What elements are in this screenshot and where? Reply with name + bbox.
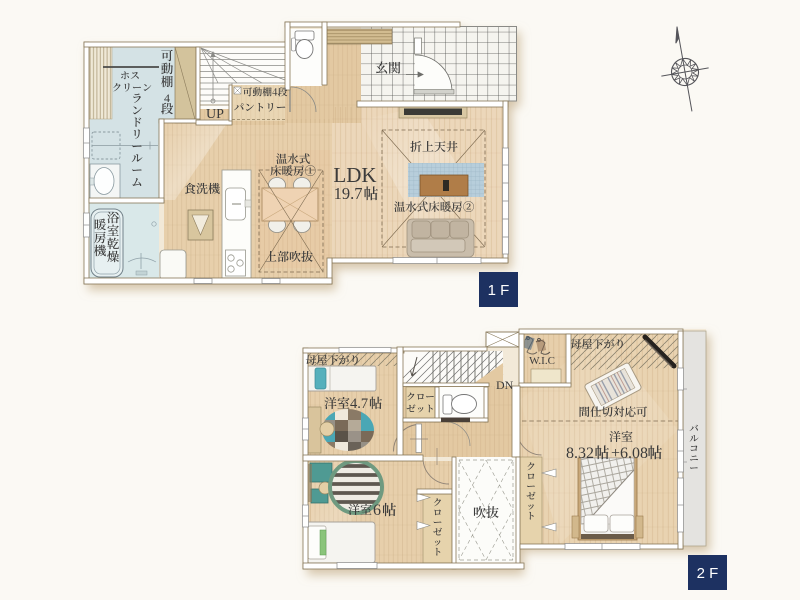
svg-text:DN: DN <box>496 378 514 392</box>
svg-text:2 F: 2 F <box>697 565 719 582</box>
svg-text:+6.08: +6.08 <box>611 445 648 462</box>
svg-text:19.7: 19.7 <box>334 184 363 203</box>
svg-text:1 F: 1 F <box>488 282 510 299</box>
svg-text:4.7: 4.7 <box>350 396 368 412</box>
svg-text:8.32: 8.32 <box>566 445 594 462</box>
svg-text:6: 6 <box>373 502 381 519</box>
svg-text:W.I.C: W.I.C <box>529 355 555 367</box>
svg-text:UP: UP <box>206 107 224 122</box>
